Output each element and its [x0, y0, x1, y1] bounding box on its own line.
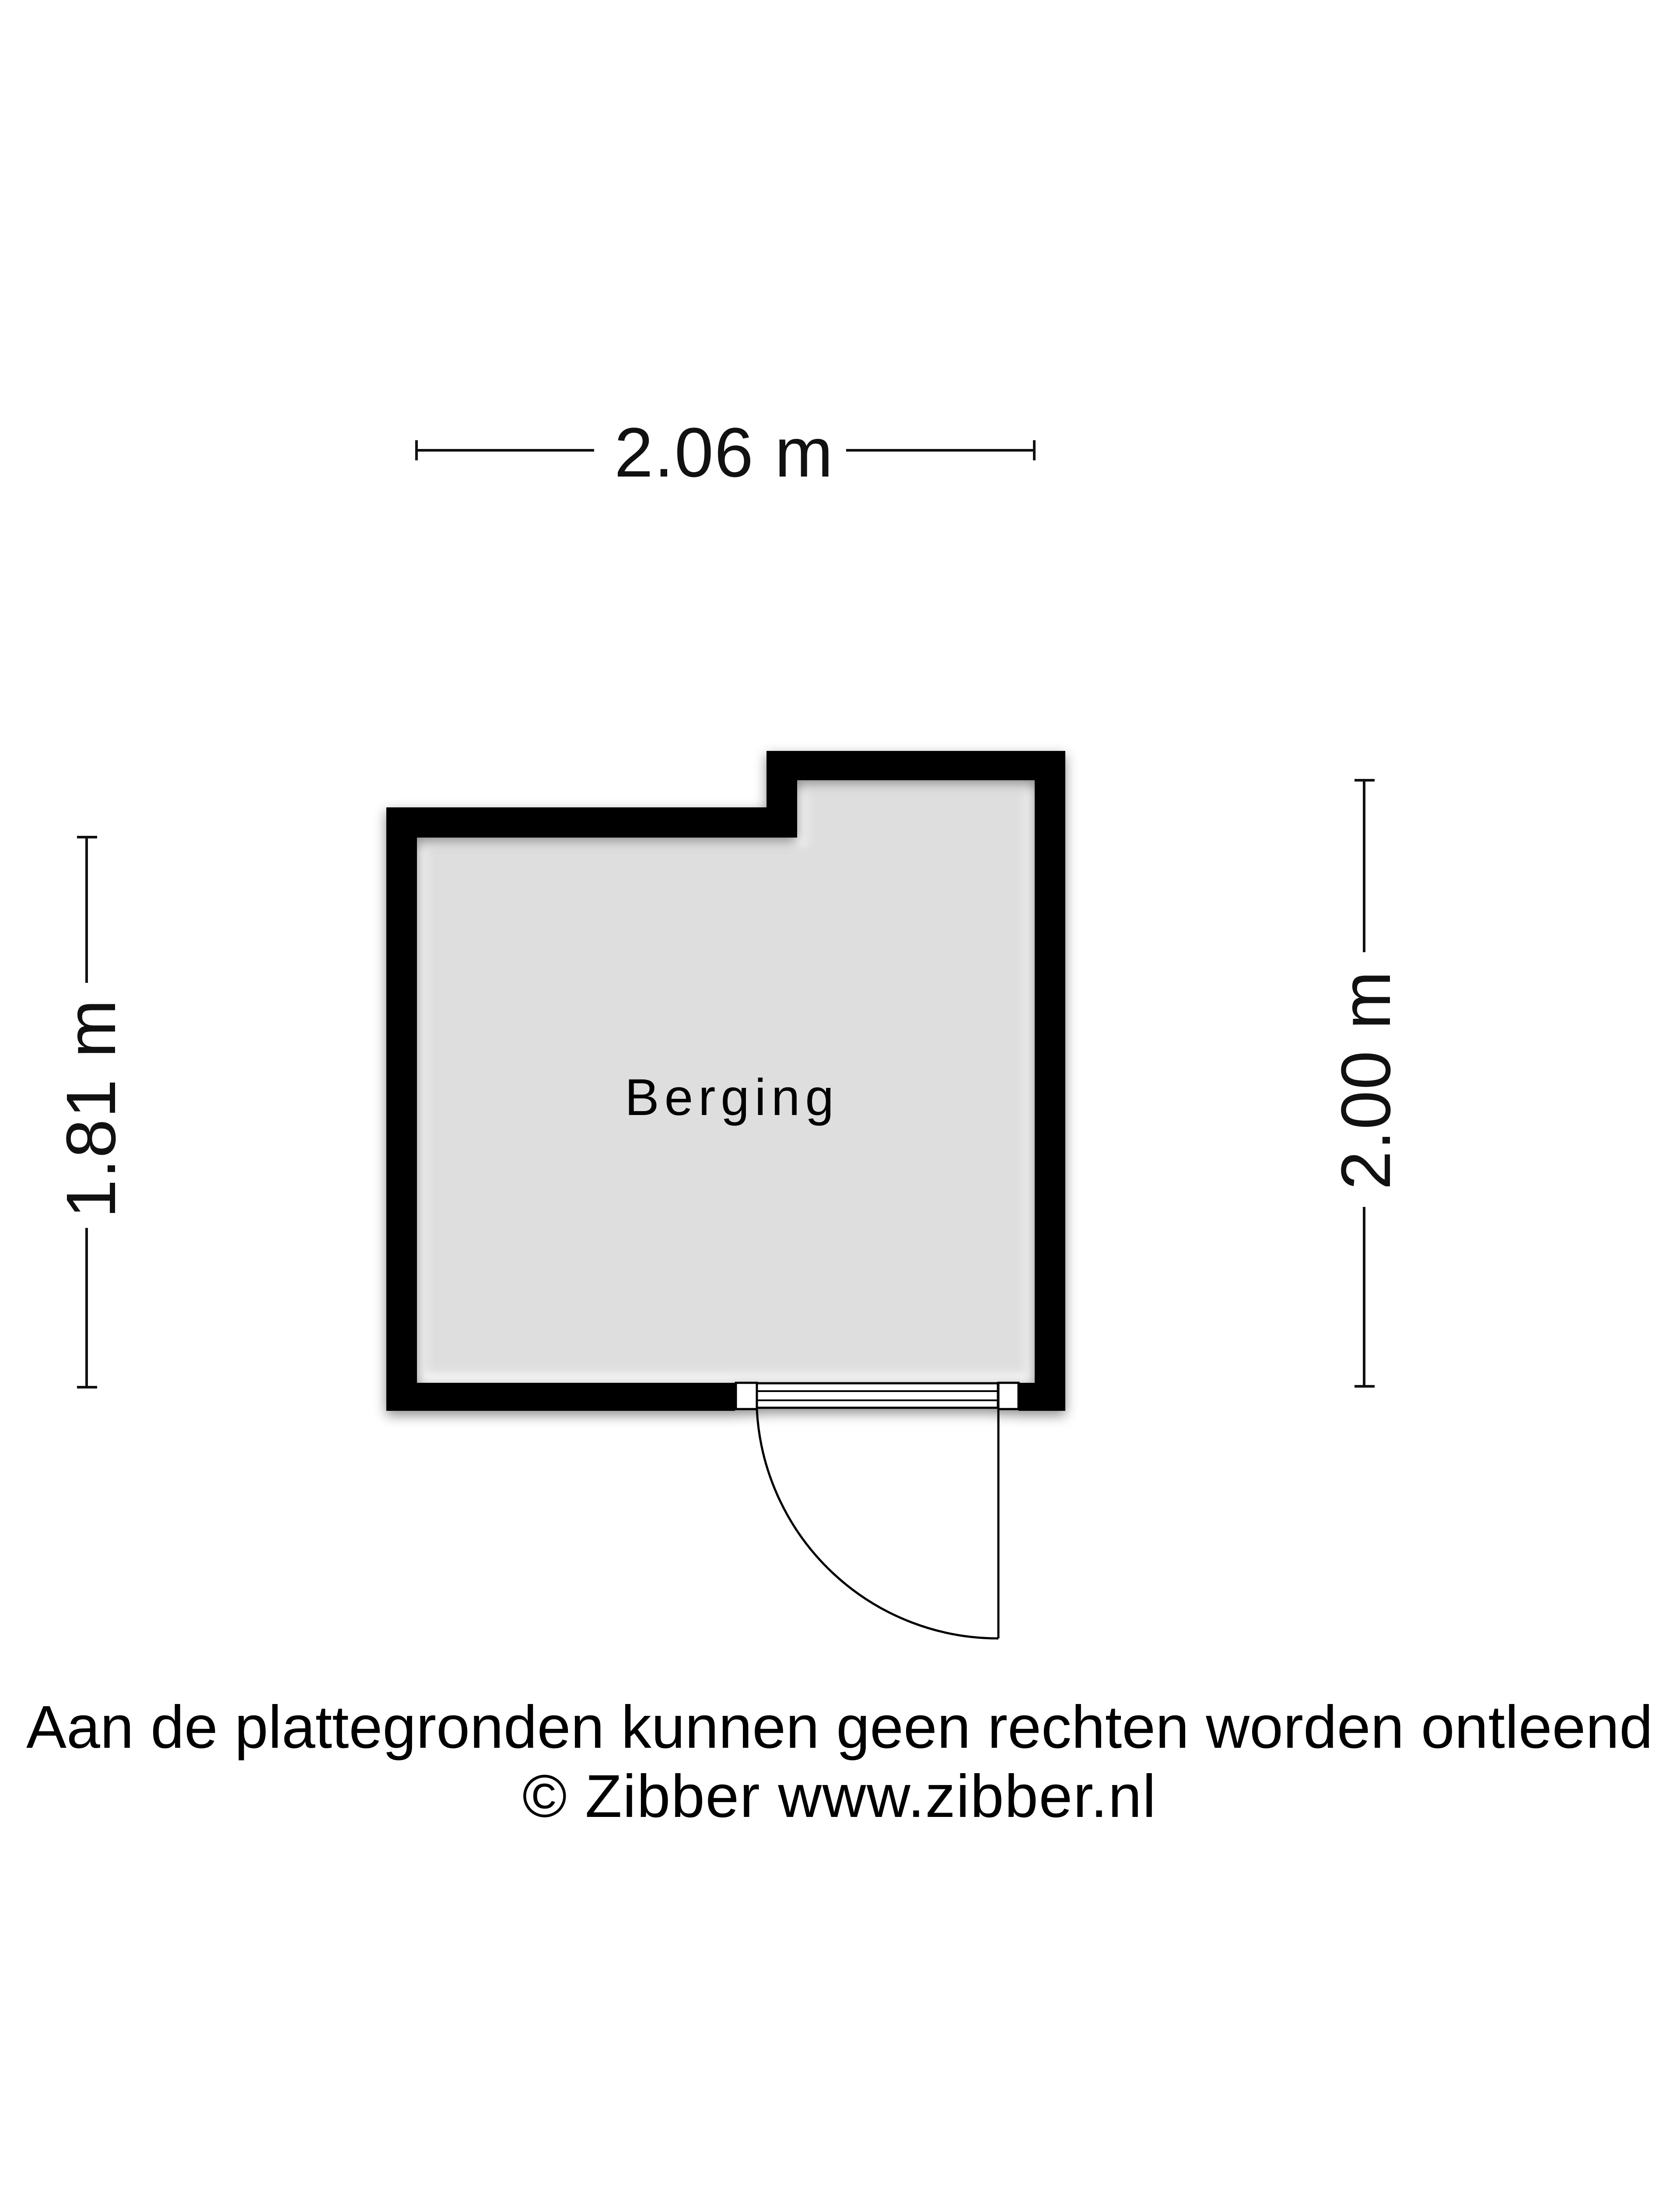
svg-text:2.06 m: 2.06 m: [614, 413, 833, 491]
svg-text:© Zibber www.zibber.nl: © Zibber www.zibber.nl: [522, 1763, 1156, 1830]
svg-text:1.81 m: 1.81 m: [52, 999, 130, 1218]
svg-text:Aan de plattegronden kunnen ge: Aan de plattegronden kunnen geen rechten…: [26, 1694, 1653, 1761]
svg-text:2.00 m: 2.00 m: [1326, 971, 1405, 1190]
